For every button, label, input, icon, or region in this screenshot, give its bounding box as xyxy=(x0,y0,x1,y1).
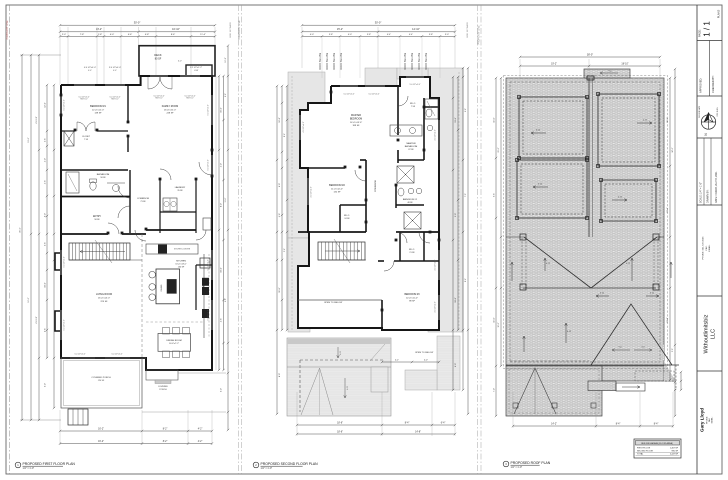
svg-text:4'-6": 4'-6" xyxy=(44,180,46,184)
svg-text:5'-0 1/2"x5'-0": 5'-0 1/2"x5'-0" xyxy=(64,99,66,110)
svg-text:1/4" = 1'-0": 1/4" = 1'-0" xyxy=(261,467,273,470)
svg-text:W.I.C.: W.I.C. xyxy=(409,249,415,251)
svg-text:11'-4": 11'-4" xyxy=(200,34,206,36)
svg-text:KITCHEN COUNTER: KITCHEN COUNTER xyxy=(174,249,191,251)
svg-text:OPEN TO BELOW: OPEN TO BELOW xyxy=(324,302,343,304)
svg-text:PAGE:: PAGE: xyxy=(698,29,702,37)
svg-text:CORRIDOR: CORRIDOR xyxy=(137,198,149,200)
svg-text:4'-0": 4'-0" xyxy=(348,34,352,36)
svg-text:248 SF: 248 SF xyxy=(166,113,174,115)
svg-text:4'-0 1/2"x4'-0": 4'-0 1/2"x4'-0" xyxy=(435,259,437,270)
svg-text:13'-2": 13'-2" xyxy=(96,28,102,31)
svg-text:BEDROOM #3: BEDROOM #3 xyxy=(404,294,420,296)
svg-text:3'-6": 3'-6" xyxy=(284,248,286,252)
svg-text:3'-8": 3'-8" xyxy=(367,34,371,36)
svg-text:80 SF: 80 SF xyxy=(155,58,162,61)
svg-text:2'-0": 2'-0" xyxy=(62,34,67,36)
svg-text:4:12: 4:12 xyxy=(347,386,349,390)
svg-text:14'-2": 14'-2" xyxy=(551,424,557,426)
svg-text:13'-6": 13'-6" xyxy=(455,117,457,123)
svg-text:10'-2": 10'-2" xyxy=(225,57,227,62)
svg-text:APPROVED:: APPROVED: xyxy=(699,78,703,93)
svg-text:5'-0 1/2"x5'-0": 5'-0 1/2"x5'-0" xyxy=(343,94,354,96)
svg-text:FIRST FLOOR: FIRST FLOOR xyxy=(637,447,651,449)
svg-text:1/4" = 1'-0": 1/4" = 1'-0" xyxy=(511,466,523,469)
svg-text:16'-10": 16'-10" xyxy=(172,28,180,31)
svg-text:9'-6": 9'-6" xyxy=(494,193,496,197)
svg-text:87 SF: 87 SF xyxy=(408,149,414,151)
svg-text:4'-4": 4'-4" xyxy=(387,34,391,36)
svg-text:GOLDEN GATE: GOLDEN GATE xyxy=(698,105,701,118)
svg-text:139 SF: 139 SF xyxy=(94,113,102,115)
svg-text:FIRE BLDG: FIRE BLDG xyxy=(717,107,719,117)
svg-text:10'-6"x7'-2": 10'-6"x7'-2" xyxy=(169,343,179,345)
svg-text:LIVING ROOM: LIVING ROOM xyxy=(96,293,112,296)
svg-text:16'-2": 16'-2" xyxy=(98,441,104,443)
svg-text:5'-0 1/2"x5'-0": 5'-0 1/2"x5'-0" xyxy=(64,256,66,267)
svg-text:1'-8": 1'-8" xyxy=(98,34,103,36)
svg-text:4'-0 1/2"x4'-0": 4'-0 1/2"x4'-0" xyxy=(435,301,437,312)
svg-text:45'-0": 45'-0" xyxy=(20,227,22,232)
svg-text:12'-0"x12'-0": 12'-0"x12'-0" xyxy=(92,109,104,111)
svg-text:5'-0 1/2"x5'-0": 5'-0 1/2"x5'-0" xyxy=(208,159,210,170)
svg-text:4'-2": 4'-2" xyxy=(198,441,203,443)
svg-text:4'-2": 4'-2" xyxy=(395,360,399,362)
svg-text:ISLAND: ISLAND xyxy=(160,284,163,291)
svg-text:1'-2 1/2"x1'-2": 1'-2 1/2"x1'-2" xyxy=(190,67,203,69)
svg-text:5'-0 1/2"x5'-0": 5'-0 1/2"x5'-0" xyxy=(74,354,85,356)
svg-text:3'-8": 3'-8" xyxy=(329,34,333,36)
svg-text:5'-0 1/2"x5'-0": 5'-0 1/2"x5'-0" xyxy=(409,84,420,86)
svg-text:ROOF BELOW: ROOF BELOW xyxy=(326,52,329,70)
svg-text:BEDROOM #1: BEDROOM #1 xyxy=(90,105,106,108)
svg-text:16'-0"x14'-0": 16'-0"x14'-0" xyxy=(98,297,110,299)
svg-text:18'-6": 18'-6" xyxy=(337,432,343,434)
svg-text:ROOF BELOW: ROOF BELOW xyxy=(425,52,428,70)
svg-text:8'-6": 8'-6" xyxy=(284,133,286,137)
svg-text:189 SF: 189 SF xyxy=(352,125,360,127)
svg-text:SIDE SETBACK: SIDE SETBACK xyxy=(466,22,469,38)
svg-text:5'-0": 5'-0" xyxy=(672,348,674,352)
svg-text:8'-2": 8'-2" xyxy=(163,441,168,443)
svg-text:DRAWN BY:: DRAWN BY: xyxy=(707,189,710,203)
svg-text:8'-0": 8'-0" xyxy=(221,203,223,207)
svg-text:18'-6": 18'-6" xyxy=(337,423,343,425)
svg-text:1,467 SF: 1,467 SF xyxy=(670,447,679,449)
svg-text:3'-6": 3'-6" xyxy=(44,242,46,246)
svg-text:5'-0 1/2"x5'-0": 5'-0 1/2"x5'-0" xyxy=(368,94,379,96)
svg-text:7'-0": 7'-0" xyxy=(494,388,496,392)
svg-text:SIDE SETBACK: SIDE SETBACK xyxy=(229,22,232,38)
svg-text:OPEN TO BELOW: OPEN TO BELOW xyxy=(415,352,434,354)
svg-text:35 SF: 35 SF xyxy=(177,190,183,192)
svg-text:8'-2": 8'-2" xyxy=(163,429,168,431)
svg-text:W.I.C.: W.I.C. xyxy=(344,215,350,217)
svg-text:5'-0": 5'-0" xyxy=(221,388,223,392)
svg-text:14'-0"x13'-6": 14'-0"x13'-6" xyxy=(350,122,362,124)
svg-text:6'-0": 6'-0" xyxy=(455,363,457,367)
svg-text:6'-4": 6'-4" xyxy=(441,423,446,425)
svg-text:8'-0": 8'-0" xyxy=(279,373,281,377)
svg-text:4'-0": 4'-0" xyxy=(110,34,115,36)
svg-text:6'-0: 6'-0 xyxy=(609,71,612,73)
svg-text:58 SF: 58 SF xyxy=(100,177,106,179)
svg-text:ROOF BELOW: ROOF BELOW xyxy=(411,52,414,70)
svg-text:TOTAL: TOTAL xyxy=(637,453,644,456)
svg-text:19'-6": 19'-6" xyxy=(28,137,30,142)
svg-text:4'-0": 4'-0" xyxy=(113,70,117,72)
svg-text:BEDROOM #2: BEDROOM #2 xyxy=(329,184,345,187)
svg-text:16'-6"x15'-0": 16'-6"x15'-0" xyxy=(164,109,176,111)
svg-text:30'-0": 30'-0" xyxy=(375,21,382,25)
svg-text:73 SF: 73 SF xyxy=(140,201,146,203)
svg-text:4'-8": 4'-8" xyxy=(145,34,150,36)
svg-text:4'-0 1/2"x4'-0": 4'-0 1/2"x4'-0" xyxy=(311,186,313,197)
svg-text:11'-0": 11'-0" xyxy=(494,317,496,322)
svg-text:10'-0": 10'-0" xyxy=(221,267,223,273)
svg-text:EMAIL:: EMAIL: xyxy=(711,416,714,423)
svg-text:5'-0: 5'-0 xyxy=(641,347,644,349)
svg-text:8'-4": 8'-4" xyxy=(616,424,621,426)
svg-text:21 SF: 21 SF xyxy=(409,252,415,254)
svg-text:11'-0"x12'-0": 11'-0"x12'-0" xyxy=(331,188,343,190)
svg-text:30'-0": 30'-0" xyxy=(134,21,141,25)
svg-text:CLOSET: CLOSET xyxy=(82,136,91,138)
svg-text:LOW: LOW xyxy=(194,70,199,72)
svg-text:4'-0": 4'-0" xyxy=(424,360,428,362)
svg-text:7'-0": 7'-0" xyxy=(465,193,467,197)
svg-text:98 SF: 98 SF xyxy=(409,301,415,303)
svg-text:11'-0": 11'-0" xyxy=(279,287,281,292)
svg-text:10'-6": 10'-6" xyxy=(498,322,500,327)
svg-text:9'-0": 9'-0" xyxy=(225,298,227,302)
svg-text:ROOF BELOW: ROOF BELOW xyxy=(333,52,336,70)
svg-text:ROOF BELOW: ROOF BELOW xyxy=(404,52,407,70)
svg-text:PROPERTY LINE: PROPERTY LINE xyxy=(478,25,481,44)
svg-text:PROPOSED SECOND FLOOR PLAN: PROPOSED SECOND FLOOR PLAN xyxy=(261,462,319,466)
svg-text:DATE: FRIDAY, JULY 9, 2021: DATE: FRIDAY, JULY 9, 2021 xyxy=(715,171,718,203)
svg-text:BATHROOM: BATHROOM xyxy=(405,145,418,148)
svg-text:6'-0": 6'-0" xyxy=(178,61,182,63)
svg-text:PROPERTY LINE: PROPERTY LINE xyxy=(6,20,9,39)
svg-text:2,447 SF: 2,447 SF xyxy=(670,454,679,456)
svg-text:1 / 1: 1 / 1 xyxy=(703,21,712,37)
svg-text:5'-0: 5'-0 xyxy=(618,347,621,349)
svg-text:4'-6": 4'-6" xyxy=(128,34,133,36)
svg-text:16'-2": 16'-2" xyxy=(98,429,104,431)
svg-text:11'-0": 11'-0" xyxy=(494,117,496,122)
svg-text:13'-4": 13'-4" xyxy=(667,207,669,213)
svg-text:4'-6": 4'-6" xyxy=(279,213,281,217)
svg-text:9'-0": 9'-0" xyxy=(455,213,457,217)
svg-text:PHONE: 941-720-0646: PHONE: 941-720-0646 xyxy=(703,236,705,259)
svg-text:DINING ROOM: DINING ROOM xyxy=(166,340,181,342)
svg-text:11'-0": 11'-0" xyxy=(225,197,227,202)
svg-text:5'-0 1/2"x5'-0": 5'-0 1/2"x5'-0" xyxy=(208,309,210,320)
svg-text:120 SF: 120 SF xyxy=(98,380,105,382)
svg-text:ROOF BELOW: ROOF BELOW xyxy=(418,52,421,70)
svg-text:BUILDING AREAS (FLOOR AREA): BUILDING AREAS (FLOOR AREA) xyxy=(641,442,673,445)
svg-text:HDR 8'-0": HDR 8'-0" xyxy=(80,99,88,101)
svg-text:HDR 8'-0": HDR 8'-0" xyxy=(155,98,163,100)
svg-text:4'-0 1/2": 4'-0 1/2" xyxy=(36,116,38,124)
svg-text:EMAIL:: EMAIL: xyxy=(708,244,711,252)
svg-text:HDR 8'-0": HDR 8'-0" xyxy=(186,98,194,100)
svg-text:10'-0": 10'-0" xyxy=(455,297,457,303)
svg-text:14'-10": 14'-10" xyxy=(412,28,420,31)
svg-text:5'-0": 5'-0" xyxy=(44,383,46,387)
svg-text:ROOF BELOW: ROOF BELOW xyxy=(319,52,322,70)
svg-text:COVERED: COVERED xyxy=(158,386,168,388)
svg-text:DECK: DECK xyxy=(154,53,161,57)
svg-text:ENTRY: ENTRY xyxy=(93,216,101,218)
svg-text:15'-6": 15'-6" xyxy=(221,107,223,113)
svg-text:BEDROOM: BEDROOM xyxy=(350,117,362,120)
svg-text:5'-0 1/2"x5'-0": 5'-0 1/2"x5'-0" xyxy=(64,319,66,330)
svg-text:PLANS: PLANS xyxy=(717,9,721,18)
svg-text:4'-0": 4'-0" xyxy=(88,70,92,72)
svg-text:6'-0": 6'-0" xyxy=(279,183,281,187)
svg-text:LAUNDRY: LAUNDRY xyxy=(175,186,186,189)
svg-text:3'-0": 3'-0" xyxy=(445,34,449,36)
svg-text:4'-0 1/2"x4'-0": 4'-0 1/2"x4'-0" xyxy=(435,129,437,140)
svg-text:132 SF: 132 SF xyxy=(333,192,341,194)
svg-text:4'-0 1/2"x4'-0": 4'-0 1/2"x4'-0" xyxy=(303,121,305,132)
svg-text:LLC: LLC xyxy=(711,329,717,339)
svg-text:4'-4": 4'-4" xyxy=(409,34,413,36)
svg-text:21'-0": 21'-0" xyxy=(498,147,500,152)
svg-text:12'-0": 12'-0" xyxy=(44,102,46,108)
svg-text:Gary Lloyd: Gary Lloyd xyxy=(700,408,705,432)
svg-text:9'-2": 9'-2" xyxy=(465,108,467,112)
svg-text:4'-0": 4'-0" xyxy=(44,158,46,162)
svg-text:5'-0 1/2"x5'-0": 5'-0 1/2"x5'-0" xyxy=(208,259,210,270)
svg-text:225 SF: 225 SF xyxy=(100,301,108,303)
svg-text:9'-2": 9'-2" xyxy=(225,93,227,97)
svg-text:PROPERTY LINE: PROPERTY LINE xyxy=(238,20,241,39)
svg-text:19'-2": 19'-2" xyxy=(551,64,557,66)
svg-text:4'-2": 4'-2" xyxy=(198,429,203,431)
svg-text:24 SF: 24 SF xyxy=(344,218,350,220)
svg-text:FAMILY ROOM: FAMILY ROOM xyxy=(162,105,178,108)
svg-text:PORCH: PORCH xyxy=(159,389,167,391)
svg-text:11'-6": 11'-6" xyxy=(667,117,669,122)
svg-text:7'-8": 7'-8" xyxy=(80,34,85,36)
svg-text:CORRIDOR: CORRIDOR xyxy=(375,180,377,192)
svg-text:24'-0": 24'-0" xyxy=(672,147,674,152)
svg-text:KITCHEN: KITCHEN xyxy=(176,261,186,263)
svg-text:4:12: 4:12 xyxy=(340,351,342,355)
svg-text:18'-10": 18'-10" xyxy=(621,64,628,66)
svg-text:8'-6": 8'-6" xyxy=(171,34,176,36)
svg-text:PROPOSED FIRST FLOOR PLAN: PROPOSED FIRST FLOOR PLAN xyxy=(23,462,76,466)
svg-text:48 SF: 48 SF xyxy=(407,202,413,204)
svg-text:SCALE: 1/4" = 1'-0": SCALE: 1/4" = 1'-0" xyxy=(700,182,703,203)
svg-text:10'-0"x13'-0": 10'-0"x13'-0" xyxy=(175,264,186,266)
svg-text:15'-2": 15'-2" xyxy=(337,28,343,31)
svg-text:5'-0 1/2"x5'-0": 5'-0 1/2"x5'-0" xyxy=(111,354,122,356)
svg-text:5'-6": 5'-6" xyxy=(44,328,46,332)
svg-text:W.I.C.: W.I.C. xyxy=(410,103,416,105)
svg-text:2'-6": 2'-6" xyxy=(44,138,46,142)
svg-text:12'-0"x11'-0": 12'-0"x11'-0" xyxy=(406,297,418,299)
svg-text:BATHROOM: BATHROOM xyxy=(97,173,110,176)
svg-text:130 SF: 130 SF xyxy=(178,267,185,269)
svg-text:PROPOSED ROOF PLAN: PROPOSED ROOF PLAN xyxy=(511,461,551,465)
svg-text:16'-0": 16'-0" xyxy=(28,297,30,302)
svg-text:4'-0": 4'-0" xyxy=(221,163,223,167)
svg-text:12'-0": 12'-0" xyxy=(279,117,281,123)
svg-text:FAX:: FAX: xyxy=(705,245,708,250)
svg-text:COVERED PORCH: COVERED PORCH xyxy=(91,377,111,379)
svg-text:8'-4": 8'-4" xyxy=(654,424,659,426)
svg-text:980 SF: 980 SF xyxy=(672,451,679,453)
svg-text:HDR 8'-0": HDR 8'-0" xyxy=(111,99,119,101)
svg-text:MASTER: MASTER xyxy=(406,142,416,145)
svg-text:4'-0 1/2": 4'-0 1/2" xyxy=(36,316,38,324)
svg-text:5'-0 1/2"x5'-0": 5'-0 1/2"x5'-0" xyxy=(208,104,210,115)
svg-text:8'-4": 8'-4" xyxy=(405,423,410,425)
svg-text:58 SF: 58 SF xyxy=(94,219,100,221)
svg-text:8'-6": 8'-6" xyxy=(465,278,467,282)
svg-text:BATHROOM #2: BATHROOM #2 xyxy=(403,198,418,201)
svg-text:ROOF BELOW: ROOF BELOW xyxy=(340,52,343,70)
svg-text:CHECKED BY:: CHECKED BY: xyxy=(711,75,715,93)
svg-text:3'-0 1/2"x4'-0": 3'-0 1/2"x4'-0" xyxy=(109,67,122,69)
svg-text:38'-0": 38'-0" xyxy=(587,54,593,57)
svg-text:4'-6": 4'-6" xyxy=(221,318,223,322)
svg-text:4'-0": 4'-0" xyxy=(310,34,314,36)
svg-text:10'-0": 10'-0" xyxy=(44,282,46,288)
svg-text:14'-8": 14'-8" xyxy=(415,432,421,434)
svg-text:SECOND FLOOR: SECOND FLOOR xyxy=(637,451,654,453)
svg-text:4'-0 1/2"x4'-0": 4'-0 1/2"x4'-0" xyxy=(84,67,97,69)
svg-text:Withoutlimitsbiz: Withoutlimitsbiz xyxy=(704,314,710,353)
svg-text:13'-6": 13'-6" xyxy=(667,317,669,323)
svg-text:3'-8": 3'-8" xyxy=(429,34,433,36)
svg-text:6'-0": 6'-0" xyxy=(44,213,46,217)
svg-text:1/4" = 1'-0": 1/4" = 1'-0" xyxy=(23,467,35,470)
